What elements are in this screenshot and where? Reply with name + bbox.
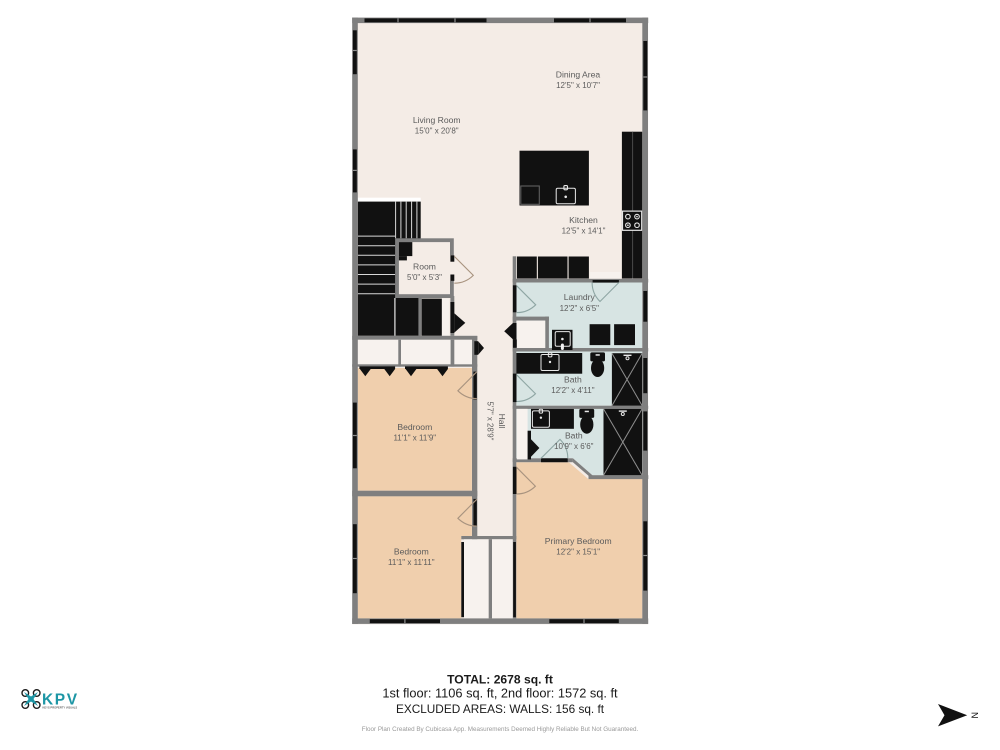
svg-text:Dining Area: Dining Area bbox=[556, 70, 601, 80]
svg-text:Laundry: Laundry bbox=[564, 292, 596, 302]
svg-text:Living Room: Living Room bbox=[413, 115, 461, 125]
svg-text:15'0" x 20'8": 15'0" x 20'8" bbox=[415, 127, 459, 136]
svg-text:Primary Bedroom: Primary Bedroom bbox=[545, 536, 612, 546]
svg-text:11'1" x 11'11": 11'1" x 11'11" bbox=[388, 558, 435, 567]
svg-text:5'0" x 5'3": 5'0" x 5'3" bbox=[407, 273, 442, 282]
svg-text:Kitchen: Kitchen bbox=[569, 215, 598, 225]
svg-text:5'7" x 28'9": 5'7" x 28'9" bbox=[486, 402, 495, 441]
svg-text:12'2" x 6'5": 12'2" x 6'5" bbox=[560, 304, 600, 313]
svg-text:Room: Room bbox=[413, 261, 436, 271]
svg-text:Bedroom: Bedroom bbox=[397, 422, 432, 432]
svg-text:KEYS PROPERTY VISUALS: KEYS PROPERTY VISUALS bbox=[43, 705, 78, 709]
svg-text:N: N bbox=[970, 712, 980, 719]
svg-text:Bath: Bath bbox=[565, 431, 583, 441]
svg-text:12'2" x 15'1": 12'2" x 15'1" bbox=[556, 547, 600, 556]
svg-text:12'5" x 14'1": 12'5" x 14'1" bbox=[562, 227, 606, 236]
svg-text:Bath: Bath bbox=[564, 374, 582, 384]
svg-text:11'1" x 11'9": 11'1" x 11'9" bbox=[393, 433, 436, 442]
svg-text:EXCLUDED AREAS: WALLS: 156 sq.: EXCLUDED AREAS: WALLS: 156 sq. ft bbox=[396, 702, 605, 716]
svg-text:10'9" x 6'6": 10'9" x 6'6" bbox=[554, 442, 594, 451]
svg-text:1st floor: 1106 sq. ft, 2nd fl: 1st floor: 1106 sq. ft, 2nd floor: 1572 … bbox=[382, 686, 618, 701]
svg-text:Hall: Hall bbox=[497, 414, 507, 429]
svg-text:12'5" x 10'7": 12'5" x 10'7" bbox=[556, 81, 600, 90]
svg-text:TOTAL: 2678 sq. ft: TOTAL: 2678 sq. ft bbox=[447, 673, 553, 687]
svg-text:12'2" x 4'11": 12'2" x 4'11" bbox=[551, 386, 594, 395]
svg-text:Bedroom: Bedroom bbox=[394, 546, 429, 556]
svg-text:Floor Plan Created By Cubicasa: Floor Plan Created By Cubicasa App. Meas… bbox=[362, 726, 639, 733]
